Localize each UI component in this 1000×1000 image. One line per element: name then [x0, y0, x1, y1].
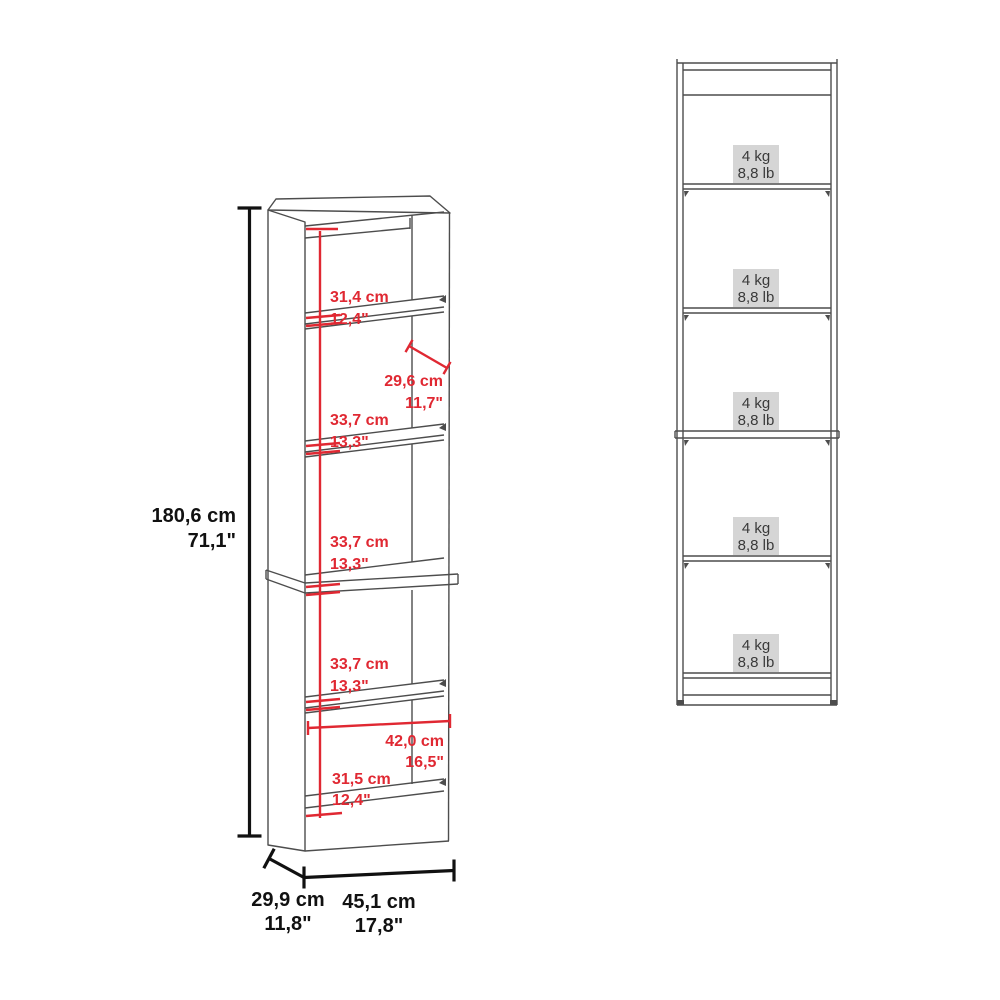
shelf-capacity-kg: 4 kg [742, 637, 770, 654]
bottom-front-edge [305, 841, 449, 851]
front-shelf-pins-and-feet [677, 191, 837, 705]
diagram-canvas: 31,4 cm 12,4" 29,6 cm 11,7" 33,7 cm 13,3… [0, 0, 1000, 1000]
shelf-pin-marks [439, 295, 446, 786]
section1-cm: 31,4 cm [330, 289, 389, 306]
section3-cm: 33,7 cm [330, 534, 389, 551]
shelf-capacity-kg: 4 kg [742, 520, 770, 537]
interior-dimension-labels: 31,4 cm 12,4" 29,6 cm 11,7" 33,7 cm 13,3… [330, 289, 444, 809]
interior-width-cm: 42,0 cm [385, 733, 444, 750]
overall-height-cm: 180,6 cm [151, 505, 236, 527]
shelf-capacity-lb: 8,8 lb [738, 537, 775, 554]
overall-width-cm: 45,1 cm [342, 891, 415, 913]
section4-cm: 33,7 cm [330, 656, 389, 673]
shelf-depth-in: 11,7" [405, 395, 443, 412]
interior-width-line [308, 721, 450, 728]
interior-dimension-lines [306, 229, 451, 818]
section4-in: 13,3" [330, 678, 369, 695]
capacity-chip-labels: 4 kg 8,8 lb 4 kg 8,8 lb 4 kg 8,8 lb 4 kg… [738, 148, 775, 671]
interior-width-in: 16,5" [405, 754, 444, 771]
overall-depth-in: 11,8" [264, 913, 311, 935]
right-foot [830, 700, 837, 705]
shelf-depth-line [409, 346, 447, 368]
section2-cm: 33,7 cm [330, 412, 389, 429]
shelf-capacity-lb: 8,8 lb [738, 165, 775, 182]
top-face [268, 196, 450, 213]
left-side-panel [268, 210, 305, 851]
overall-width-in: 17,8" [355, 915, 403, 937]
section5-in: 12,4" [332, 792, 371, 809]
shelf-capacity-kg: 4 kg [742, 395, 770, 412]
overall-width-line [304, 871, 454, 878]
front-view: 4 kg 8,8 lb 4 kg 8,8 lb 4 kg 8,8 lb 4 kg… [675, 59, 839, 705]
shelf-capacity-kg: 4 kg [742, 148, 770, 165]
overall-dimension-labels: 180,6 cm 71,1" 29,9 cm 11,8" 45,1 cm 17,… [151, 505, 415, 937]
section5-cm: 31,5 cm [332, 771, 391, 788]
overall-depth-cm: 29,9 cm [251, 889, 324, 911]
shelf-capacity-kg: 4 kg [742, 272, 770, 289]
left-foot [677, 700, 684, 705]
shelf-capacity-lb: 8,8 lb [738, 412, 775, 429]
shelf-capacity-lb: 8,8 lb [738, 654, 775, 671]
shelf-capacity-lb: 8,8 lb [738, 289, 775, 306]
right-edge [449, 213, 450, 841]
product-dimension-diagram: 31,4 cm 12,4" 29,6 cm 11,7" 33,7 cm 13,3… [0, 0, 1000, 1000]
section3-in: 13,3" [330, 556, 369, 573]
section2-in: 13,3" [330, 434, 369, 451]
perspective-view: 31,4 cm 12,4" 29,6 cm 11,7" 33,7 cm 13,3… [151, 196, 458, 937]
shelf-depth-cm: 29,6 cm [384, 373, 443, 390]
section1-in: 12,4" [330, 311, 369, 328]
overall-height-in: 71,1" [188, 530, 236, 552]
overall-depth-line [269, 859, 304, 878]
